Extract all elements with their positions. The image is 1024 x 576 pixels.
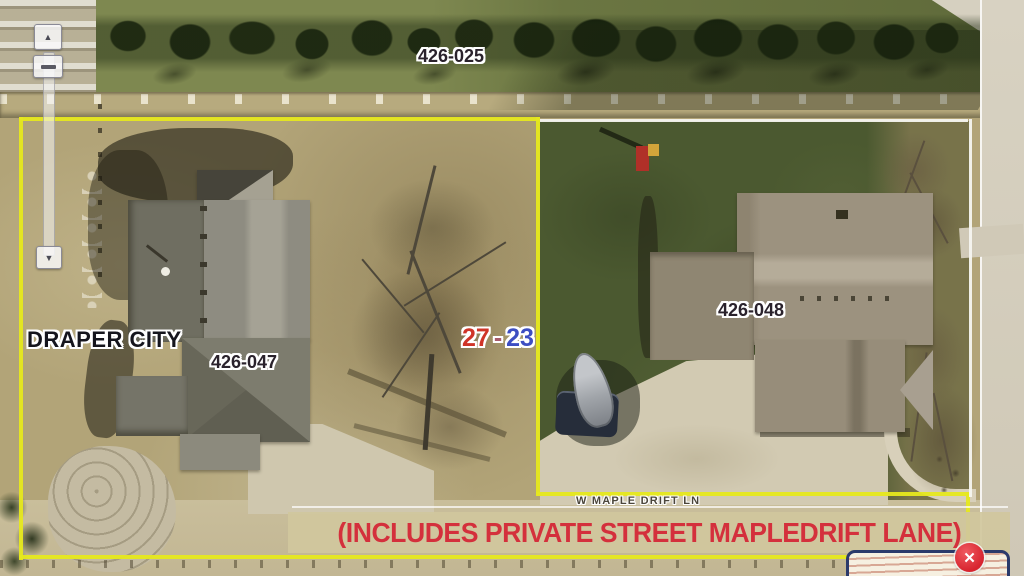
paver-patio (48, 446, 176, 572)
zoom-out-button[interactable]: ▼ (36, 246, 62, 269)
map-canvas[interactable]: 426-025 DRAPER CITY 426-047 27-23 426-04… (0, 0, 1024, 576)
house-left-gable (197, 170, 273, 202)
private-street-banner: (INCLUDES PRIVATE STREET MAPLEDRIFT LANE… (288, 512, 1010, 553)
house-right-garage (755, 340, 905, 432)
slider-handle-icon (41, 65, 56, 69)
roof-vent-cap (161, 267, 170, 276)
selected-parcel-boundary-right (536, 117, 540, 496)
zoom-out-icon: ▼ (45, 253, 54, 263)
roof-vents (200, 206, 207, 340)
parcel-label-426-047: 426-047 (211, 352, 277, 373)
zoom-in-icon: ▲ (44, 32, 53, 42)
road-right-edge (980, 0, 1024, 576)
selected-parcel-boundary-left (19, 117, 23, 560)
private-street-banner-text: (INCLUDES PRIVATE STREET MAPLEDRIFT LANE… (337, 517, 961, 549)
branch (409, 250, 461, 374)
zoom-slider-handle[interactable] (33, 55, 63, 78)
house-left-roof (204, 200, 310, 340)
adjacent-parcel-boundary-right (969, 119, 972, 497)
selected-parcel-boundary-top (19, 117, 540, 121)
street-label: W MAPLE DRIFT LN (576, 495, 700, 507)
zoom-in-button[interactable]: ▲ (34, 24, 62, 50)
tree-row (0, 2, 1024, 98)
branch (406, 165, 436, 274)
chimney (836, 210, 848, 219)
parcel-label-426-048: 426-048 (718, 300, 784, 321)
house-left-wing (116, 376, 188, 436)
section-left: 27 (462, 324, 490, 352)
zoom-slider-track[interactable] (43, 52, 55, 256)
section-label: 27-23 (462, 324, 534, 353)
branch (933, 393, 954, 481)
adjacent-parcel-boundary-top (540, 119, 968, 122)
info-popup[interactable] (846, 550, 1010, 576)
section-dash: - (490, 324, 506, 352)
selected-parcel-boundary-bottom (19, 555, 970, 559)
branch (361, 259, 424, 334)
section-right: 23 (506, 324, 534, 352)
close-icon: ✕ (963, 549, 976, 567)
house-left-gable-face (197, 170, 273, 202)
city-label: DRAPER CITY (27, 327, 182, 353)
roof-vents (800, 296, 892, 301)
playground-equipment (648, 144, 659, 156)
tree-trunk (423, 354, 435, 450)
house-right-roof (737, 193, 933, 345)
parcel-label-426-025: 426-025 (418, 46, 484, 67)
house-left-garage (180, 434, 260, 470)
close-button[interactable]: ✕ (955, 543, 984, 572)
bare-tree (322, 128, 542, 484)
